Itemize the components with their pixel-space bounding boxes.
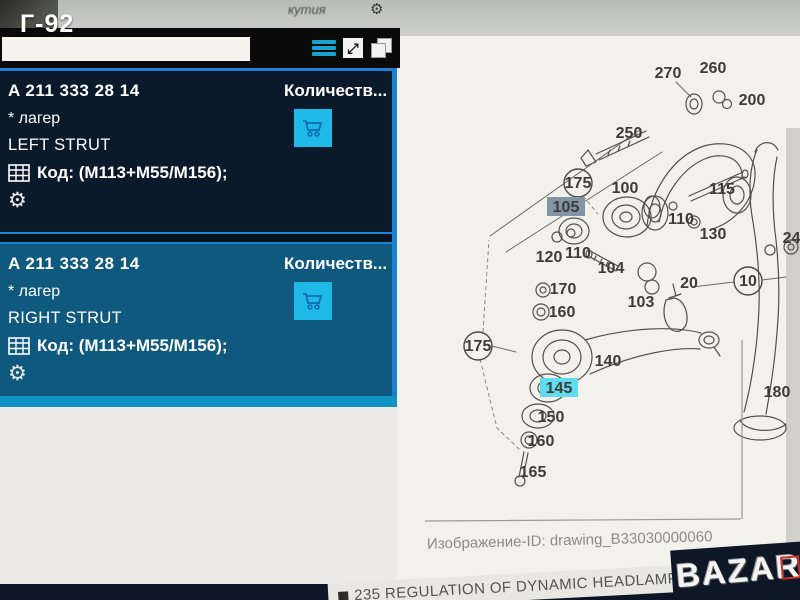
diagram-label-145[interactable]: 145 — [546, 380, 573, 397]
part-code: Код: (M113+M55/M156); — [37, 336, 228, 356]
table-icon — [8, 164, 30, 182]
diagram-svg: 2702602502001751001051151101301201101041… — [395, 36, 800, 530]
gear-icon[interactable]: ⚙ — [370, 0, 383, 18]
diagram-label-115[interactable]: 115 — [709, 181, 735, 198]
diagram-label-270[interactable]: 270 — [655, 65, 682, 82]
cart-icon — [301, 117, 325, 139]
diagram-label-175[interactable]: 175 — [565, 175, 592, 192]
settings-gear-icon[interactable]: ⚙ — [8, 190, 384, 212]
diagram-label-105[interactable]: 105 — [553, 199, 580, 216]
settings-gear-icon[interactable]: ⚙ — [8, 363, 384, 385]
add-to-cart-button[interactable] — [294, 282, 332, 320]
diagram-label-200[interactable]: 200 — [739, 92, 766, 109]
diagram-label-103[interactable]: 103 — [628, 294, 655, 311]
diagram-label-160[interactable]: 160 — [528, 433, 555, 450]
diagram-label-260[interactable]: 260 — [700, 60, 727, 77]
diagram-label-104[interactable]: 104 — [598, 260, 625, 277]
regulation-row-icon — [338, 591, 349, 600]
screenshot-stage: кутия ⚙ Г-92 ⤢ A 211 333 28 14 Количеств… — [0, 0, 800, 600]
diagram-label-180[interactable]: 180 — [764, 384, 791, 401]
parts-panel: A 211 333 28 14 Количеств... * лагер LEF… — [0, 68, 397, 407]
diagram-label-100[interactable]: 100 — [612, 180, 639, 197]
diagram-label-140[interactable]: 140 — [595, 353, 622, 370]
diagram-label-110[interactable]: 110 — [565, 245, 591, 262]
quantity-column-header: Количеств... — [284, 81, 388, 101]
diagram-label-250[interactable]: 250 — [616, 125, 643, 142]
diagram-label-150[interactable]: 150 — [538, 409, 565, 426]
row-separator — [0, 232, 392, 244]
diagram-label-20[interactable]: 20 — [680, 275, 698, 292]
diagram-label-165[interactable]: 165 — [520, 464, 547, 481]
list-view-icon[interactable] — [312, 38, 336, 58]
diagram-label-10[interactable]: 10 — [739, 273, 757, 290]
quantity-column-header: Количеств... — [284, 254, 388, 274]
diagram-label-160[interactable]: 160 — [549, 304, 576, 321]
diagram-label-110[interactable]: 110 — [668, 211, 694, 228]
diagram-label-240[interactable]: 240 — [783, 230, 800, 247]
diagram-label-120[interactable]: 120 — [536, 249, 563, 266]
cart-icon — [301, 290, 325, 312]
watermark-red-icon — [780, 555, 800, 580]
diagram-label-175[interactable]: 175 — [465, 338, 492, 355]
table-icon — [8, 337, 30, 355]
part-row-right-strut[interactable]: A 211 333 28 14 Количеств... * лагер RIG… — [0, 244, 392, 396]
part-row-left-strut[interactable]: A 211 333 28 14 Количеств... * лагер LEF… — [0, 68, 392, 232]
part-code: Код: (M113+M55/M156); — [37, 163, 228, 183]
photo-tag: Г-92 — [20, 10, 74, 39]
search-input[interactable] — [2, 37, 250, 61]
add-to-cart-button[interactable] — [294, 109, 332, 147]
panel-bottom-strip — [0, 396, 397, 407]
top-hint-label: кутия — [288, 2, 326, 17]
copy-icon[interactable] — [370, 38, 392, 58]
diagram-label-170[interactable]: 170 — [550, 281, 577, 298]
fullscreen-icon[interactable]: ⤢ — [343, 38, 363, 58]
diagram-label-130[interactable]: 130 — [700, 226, 727, 243]
